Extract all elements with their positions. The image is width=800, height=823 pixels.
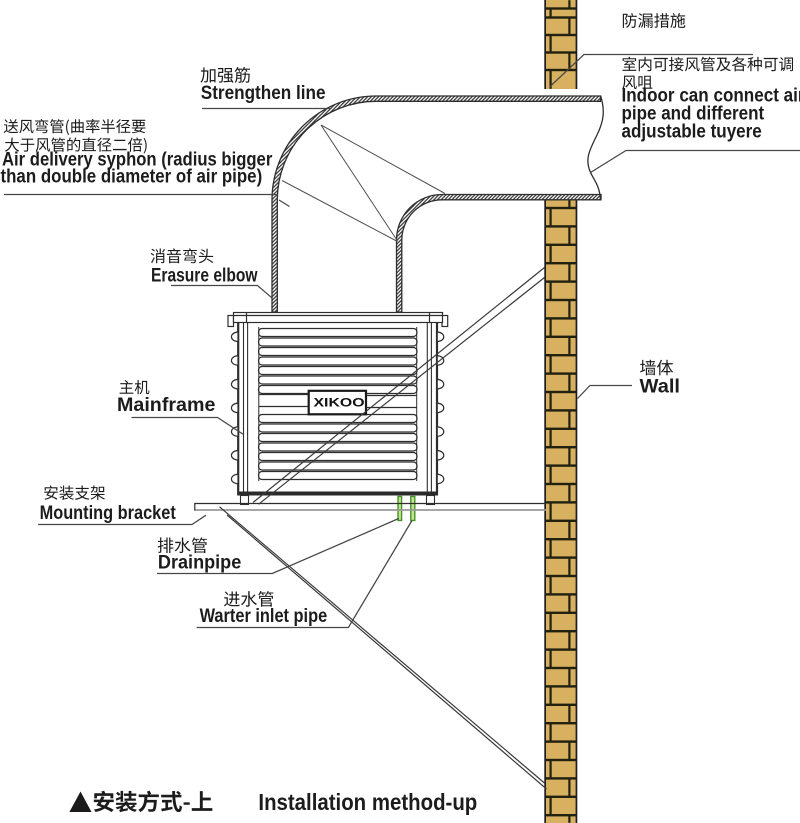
svg-text:Mainframe: Mainframe bbox=[117, 395, 215, 416]
svg-text:Wall: Wall bbox=[640, 377, 681, 398]
svg-text:than double diameter of air pi: than double diameter of air pipe) bbox=[1, 167, 263, 188]
svg-text:Strengthen line: Strengthen line bbox=[201, 83, 326, 104]
svg-text:Drainpipe: Drainpipe bbox=[158, 552, 241, 573]
svg-text:adjustable tuyere: adjustable tuyere bbox=[622, 122, 762, 143]
svg-text:Erasure elbow: Erasure elbow bbox=[151, 265, 258, 286]
svg-text:Installation method-up: Installation method-up bbox=[258, 789, 477, 815]
svg-text:XIKOO: XIKOO bbox=[314, 396, 365, 410]
svg-text:Mounting bracket: Mounting bracket bbox=[40, 503, 177, 524]
svg-text:Warter inlet pipe: Warter inlet pipe bbox=[200, 606, 328, 627]
